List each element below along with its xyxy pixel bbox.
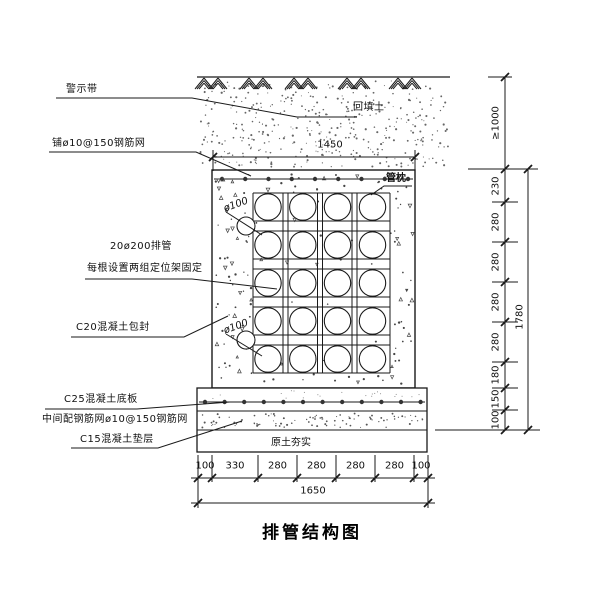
label-warning-tape: 警示带 <box>66 84 98 95</box>
label-pipes-1: 20ø200排管 <box>110 241 172 252</box>
dim-bottom-seg-5: 280 <box>385 461 404 472</box>
dim-bottom-seg-1: 330 <box>225 461 244 472</box>
dim-right-total: 1780 <box>515 304 526 329</box>
label-backfill: 回填土 <box>353 102 385 113</box>
soil-stipple <box>199 80 449 167</box>
label-pipes-2: 每根设置两组定位架固定 <box>87 263 203 274</box>
dim-bottom-seg-4: 280 <box>346 461 365 472</box>
dim-bottom-seg-0: 100 <box>195 461 214 472</box>
dim-right-seg-1: 280 <box>491 212 502 231</box>
dim-right-cover: ≥1000 <box>491 106 502 140</box>
label-pipe-pillow: 管枕 <box>386 173 406 184</box>
dim-right-seg-2: 280 <box>491 252 502 271</box>
drawing-canvas: 警示带 铺ø10@150钢筋网 20ø200排管 每根设置两组定位架固定 C20… <box>0 0 600 600</box>
dim-bottom-total: 1650 <box>300 486 325 497</box>
dim-right-seg-5: 180 <box>491 365 502 384</box>
dim-right-seg-4: 280 <box>491 332 502 351</box>
dim-right-seg-0: 230 <box>491 176 502 195</box>
dim-bottom-seg-6: 100 <box>411 461 430 472</box>
dim-top-width: 1450 <box>317 140 342 151</box>
base-slab <box>197 388 427 452</box>
dim-bottom-seg-2: 280 <box>268 461 287 472</box>
dim-right-seg-6: 150 <box>491 389 502 408</box>
label-base-slab: C25混凝土底板 <box>64 394 138 405</box>
dim-right-seg-3: 280 <box>491 292 502 311</box>
label-encasement: C20混凝土包封 <box>76 322 150 333</box>
ground-hatch <box>195 78 421 89</box>
label-cushion: C15混凝土垫层 <box>80 434 154 445</box>
label-compacted-soil: 原土夯实 <box>271 434 311 449</box>
dim-bottom-seg-3: 280 <box>307 461 326 472</box>
label-mid-mesh: 中间配钢筋网ø10@150钢筋网 <box>42 414 188 425</box>
label-top-mesh: 铺ø10@150钢筋网 <box>52 138 145 149</box>
dim-right-seg-7: 100 <box>491 410 502 429</box>
drawing-title: 排管结构图 <box>262 518 362 543</box>
